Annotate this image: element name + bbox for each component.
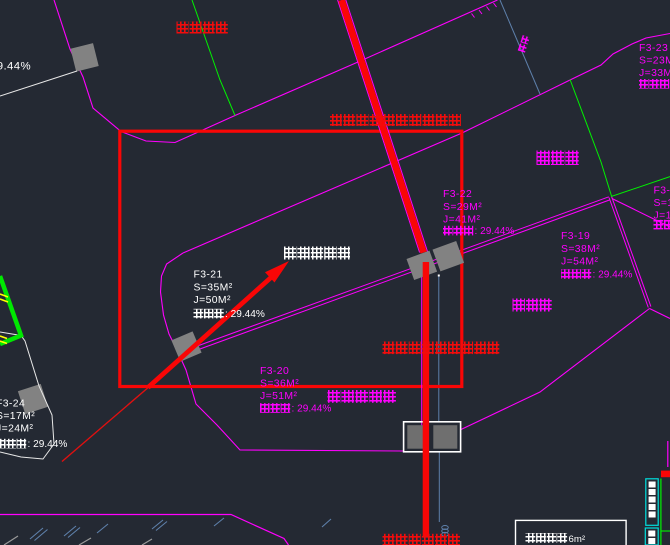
svg-text:F3-24: F3-24 bbox=[0, 399, 25, 410]
svg-text:S=17M²: S=17M² bbox=[0, 411, 35, 422]
svg-text:: 29.44%: : 29.44% bbox=[593, 270, 633, 281]
svg-text:29.44%: 29.44% bbox=[0, 61, 31, 73]
svg-text:: 29.44%: : 29.44% bbox=[28, 439, 68, 450]
svg-text:F3-22: F3-22 bbox=[443, 189, 472, 200]
svg-text:J=51M²: J=51M² bbox=[260, 391, 297, 402]
svg-text:F3-23: F3-23 bbox=[639, 43, 668, 54]
svg-text:S=1: S=1 bbox=[654, 198, 670, 209]
svg-text:S=23M²: S=23M² bbox=[639, 56, 670, 67]
svg-text:F3-20: F3-20 bbox=[260, 366, 289, 377]
svg-text:J=41M²: J=41M² bbox=[443, 214, 480, 225]
svg-text:J=54M²: J=54M² bbox=[561, 256, 598, 267]
svg-text:S=29M²: S=29M² bbox=[443, 202, 482, 213]
svg-text:J=50M²: J=50M² bbox=[194, 295, 231, 306]
svg-text:F3-21: F3-21 bbox=[194, 270, 223, 281]
svg-text:S=36M²: S=36M² bbox=[260, 379, 299, 390]
svg-text:J=24M²: J=24M² bbox=[0, 424, 33, 435]
svg-text:S=38M²: S=38M² bbox=[561, 244, 600, 255]
svg-text:: 29.44%: : 29.44% bbox=[225, 309, 265, 320]
svg-text:6m²: 6m² bbox=[569, 534, 586, 545]
svg-text:: 29.44%: : 29.44% bbox=[292, 404, 332, 415]
svg-text:F3-: F3- bbox=[654, 186, 670, 197]
svg-text:: 29.44%: : 29.44% bbox=[475, 226, 515, 237]
svg-text:S=35M²: S=35M² bbox=[194, 282, 233, 293]
svg-text:F3-19: F3-19 bbox=[561, 231, 590, 242]
svg-text:J=33M²: J=33M² bbox=[639, 68, 670, 79]
